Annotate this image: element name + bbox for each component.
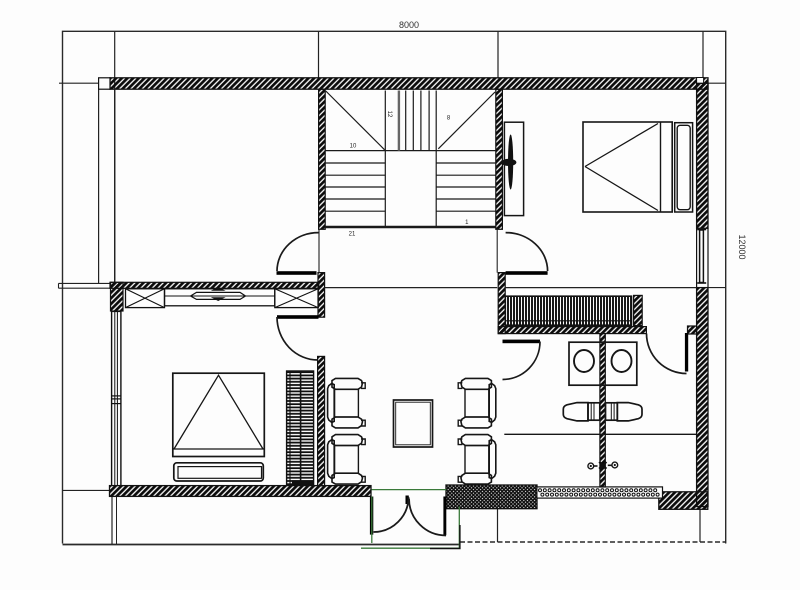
svg-text:21: 21 <box>349 232 356 238</box>
svg-text:12000: 12000 <box>737 234 747 259</box>
svg-text:12: 12 <box>386 111 392 118</box>
svg-text:8: 8 <box>447 116 451 122</box>
svg-text:8000: 8000 <box>399 20 419 30</box>
svg-text:10: 10 <box>350 144 357 150</box>
svg-text:1: 1 <box>465 220 469 226</box>
